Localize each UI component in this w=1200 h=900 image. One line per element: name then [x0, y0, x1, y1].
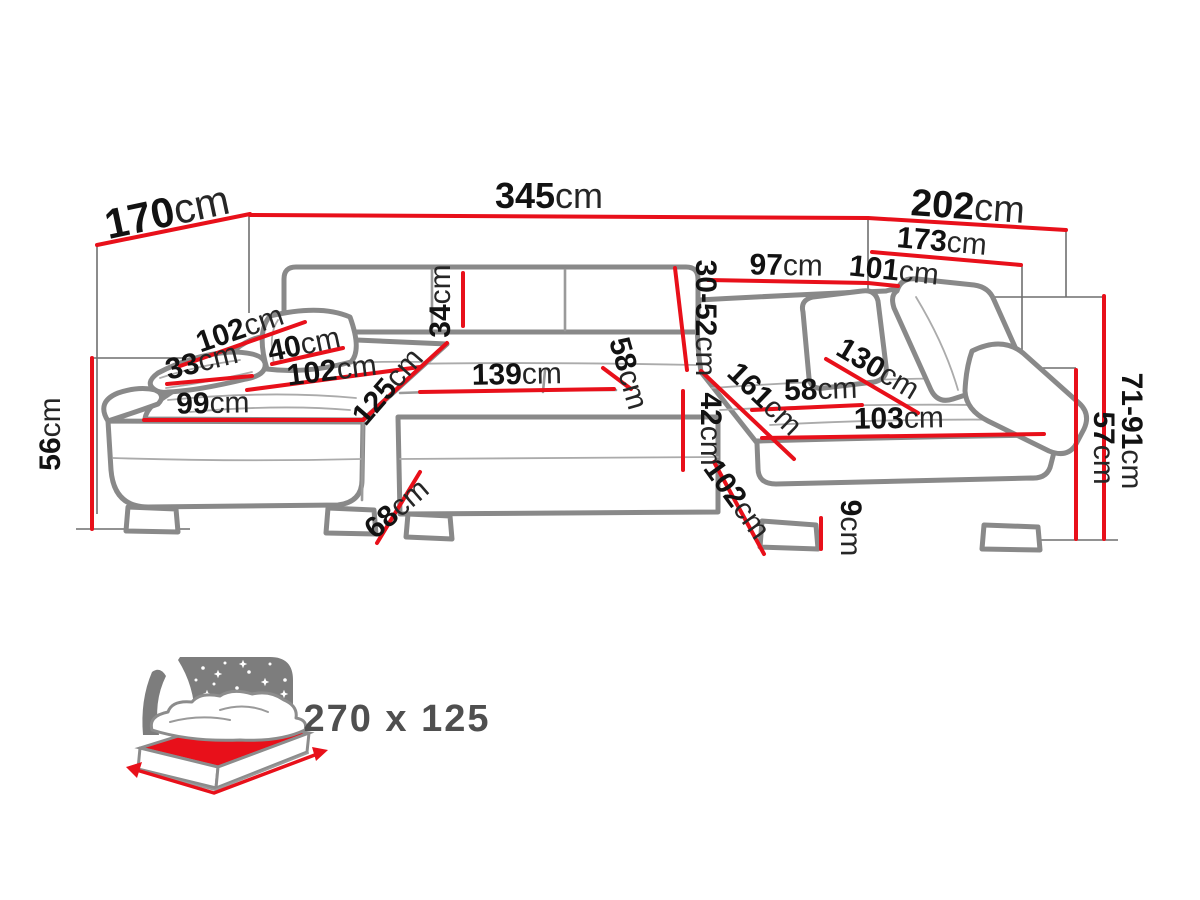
dimension-label-leg-height-9: 9cm: [834, 500, 867, 557]
sofa-left-corner-crease: [362, 423, 363, 500]
dimension-label-width-left-170: 170cm: [100, 176, 233, 248]
sofa-left-chaise-base: [108, 421, 363, 507]
dimension-label-wing-front-103: 103cm: [854, 401, 945, 436]
dimension-label-width-top-345: 345cm: [495, 175, 603, 216]
dimension-label-height-left-56: 56cm: [34, 397, 67, 470]
dimension-label-chaise-front-99: 99cm: [176, 386, 250, 420]
sofa-left-legs: [126, 507, 376, 534]
sofa-dimension-diagram: 170cm345cm202cm173cm97cm101cm102cm33cm40…: [0, 0, 1200, 900]
sofa-center-leg: [406, 514, 452, 539]
bed-pillows: [151, 691, 305, 740]
sofa-center-base: [398, 417, 718, 514]
sofa-bed-icon: 270 x 125: [126, 657, 491, 793]
dimension-label-center-width-139: 139cm: [472, 357, 563, 392]
bed-size-badge: 270 x 125: [303, 698, 490, 740]
sofa-right-legs: [760, 521, 1040, 550]
dimension-label-backrest-height-34: 34cm: [424, 264, 457, 337]
bed-arrowhead-right: [312, 747, 328, 761]
dimension-label-headrest-range-3052: 30-52cm: [689, 260, 722, 377]
dimension-label-seat-height-57: 57cm: [1087, 411, 1120, 484]
dimension-label-back-width-97: 97cm: [749, 248, 823, 282]
dimension-label-seat-depth-58-right: 58cm: [783, 372, 857, 408]
